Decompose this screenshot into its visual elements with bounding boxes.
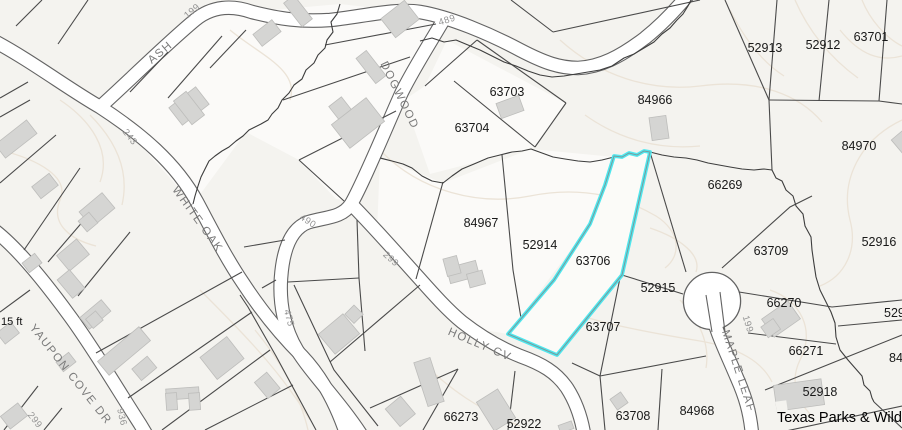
svg-text:84966: 84966: [638, 93, 673, 107]
svg-text:66273: 66273: [444, 410, 479, 424]
svg-text:15 ft: 15 ft: [1, 316, 22, 328]
svg-text:66269: 66269: [708, 178, 743, 192]
svg-text:52918: 52918: [803, 385, 838, 399]
svg-text:84970: 84970: [842, 139, 877, 153]
svg-text:Texas Parks & Wildl: Texas Parks & Wildl: [777, 410, 902, 426]
svg-text:52916: 52916: [862, 235, 897, 249]
svg-text:52914: 52914: [523, 238, 558, 252]
svg-text:63708: 63708: [616, 409, 651, 423]
svg-text:52915: 52915: [641, 281, 676, 295]
svg-text:63701: 63701: [854, 30, 889, 44]
svg-text:84968: 84968: [680, 404, 715, 418]
svg-text:52922: 52922: [507, 417, 542, 430]
svg-text:52912: 52912: [806, 38, 841, 52]
svg-text:63703: 63703: [490, 85, 525, 99]
svg-text:84969: 84969: [889, 351, 902, 365]
svg-text:52917: 52917: [884, 306, 902, 320]
svg-text:66270: 66270: [767, 296, 802, 310]
svg-text:63706: 63706: [576, 254, 611, 268]
svg-text:52913: 52913: [748, 41, 783, 55]
svg-text:66271: 66271: [789, 344, 824, 358]
svg-text:84967: 84967: [464, 216, 499, 230]
svg-text:63704: 63704: [455, 121, 490, 135]
svg-text:63707: 63707: [586, 320, 621, 334]
svg-text:63709: 63709: [754, 244, 789, 258]
